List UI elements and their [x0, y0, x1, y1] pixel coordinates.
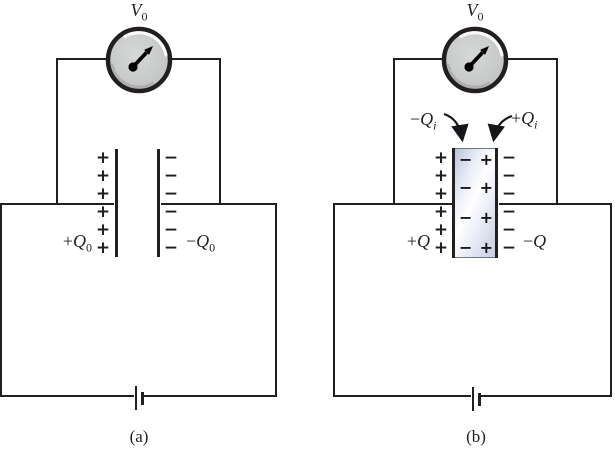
induced-pair-row: −+: [459, 240, 493, 256]
induced-charge-arrows: [410, 106, 545, 150]
induced-pair-row: −+: [459, 152, 493, 168]
plate-charges-right-a: − − − − − −: [163, 150, 179, 254]
needle-pivot: [464, 62, 473, 71]
battery-short-terminal-a: [141, 392, 145, 405]
battery-long-terminal-b: [472, 387, 474, 411]
wire-meter-right-a: [219, 58, 221, 205]
voltmeter-a: [101, 22, 177, 98]
voltmeter-label-a: V0: [109, 0, 169, 25]
voltmeter-b: [437, 22, 513, 98]
plate-charges-left-b: + + + + + +: [433, 150, 449, 254]
caption-b: (b): [446, 427, 506, 447]
capacitor-gap-patch-a: [114, 201, 161, 208]
battery-short-terminal-b: [478, 393, 482, 406]
wire-meter-left-b: [393, 58, 395, 205]
capacitor-plate-left-b: [452, 148, 455, 258]
charge-label-right-a: −Q0: [186, 231, 215, 256]
arrow-to-dielectric-left-icon: [444, 114, 462, 138]
wire-meter-left-a: [56, 58, 58, 205]
capacitor-plate-right-b: [495, 148, 498, 258]
arrow-to-dielectric-right-icon: [494, 116, 512, 138]
caption-a: (a): [109, 427, 169, 447]
plate-charges-right-b: − − − − − −: [501, 150, 517, 254]
figure-capacitor-dielectric: V0 + + + + + + − − − − − − +Q0 −Q0: [0, 0, 615, 450]
plate-charges-left-a: + + + + + +: [95, 150, 111, 254]
charge-label-left-b: +Q: [390, 231, 430, 256]
capacitor-plate-left-a: [115, 149, 118, 257]
voltmeter-label-b: V0: [445, 0, 505, 25]
needle-pivot: [128, 62, 137, 71]
battery-long-terminal-a: [135, 386, 137, 410]
capacitor-plate-right-a: [157, 149, 160, 257]
induced-pair-row: −+: [459, 210, 493, 226]
charge-label-right-b: −Q: [523, 231, 546, 256]
induced-pair-row: −+: [459, 180, 493, 196]
wire-meter-right-b: [556, 58, 558, 205]
charge-label-left-a: +Q0: [40, 231, 92, 256]
